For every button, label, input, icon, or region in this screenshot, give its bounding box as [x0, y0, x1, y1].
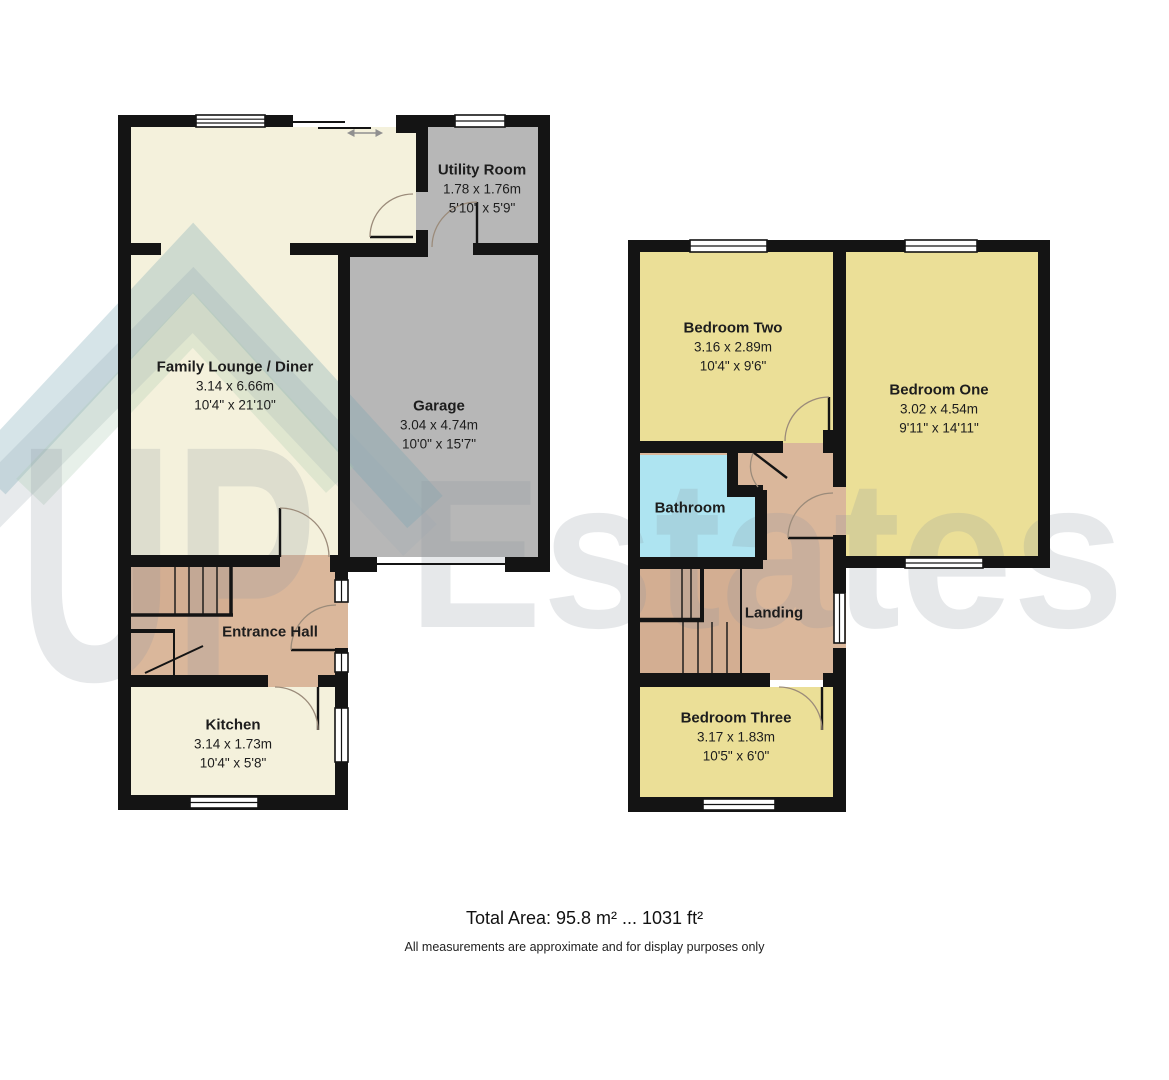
room-dim-metric: 3.04 x 4.74m [400, 416, 478, 435]
room-name: Kitchen [194, 716, 272, 735]
room-label-bathroom: Bathroom [655, 499, 726, 518]
stairs-ground-icon [118, 567, 233, 676]
door-icon-kitchen [275, 687, 318, 730]
window-icon [190, 797, 258, 808]
room-name: Family Lounge / Diner [157, 358, 314, 377]
floorplan-canvas: UP Estates [0, 0, 1169, 1080]
room-name: Bedroom Two [684, 319, 783, 338]
room-dim-imperial: 5'10" x 5'9" [438, 199, 526, 218]
room-dim-imperial: 10'4" x 21'10" [157, 396, 314, 415]
room-dim-imperial: 10'5" x 6'0" [681, 747, 792, 766]
room-dim-metric: 3.02 x 4.54m [889, 400, 988, 419]
window-icon [196, 115, 265, 127]
room-dim-metric: 3.14 x 1.73m [194, 735, 272, 754]
room-dim-metric: 3.14 x 6.66m [157, 377, 314, 396]
stairs-first-icon [632, 563, 742, 675]
room-name: Utility Room [438, 161, 526, 180]
room-name: Bedroom One [889, 381, 988, 400]
room-label-bedroom-two: Bedroom Two 3.16 x 2.89m 10'4" x 9'6" [684, 319, 783, 376]
window-icon [335, 708, 348, 762]
room-label-bedroom-three: Bedroom Three 3.17 x 1.83m 10'5" x 6'0" [681, 709, 792, 766]
doors [275, 194, 833, 730]
ground-floor-walls [118, 115, 550, 810]
windows [190, 115, 983, 810]
room-dim-metric: 3.16 x 2.89m [684, 338, 783, 357]
window-icon [834, 593, 845, 643]
door-icon-bedroom-one [788, 493, 833, 538]
window-icon [905, 240, 977, 252]
room-dim-metric: 1.78 x 1.76m [438, 180, 526, 199]
room-dim-imperial: 10'0" x 15'7" [400, 435, 478, 454]
window-icon [905, 558, 983, 568]
room-name: Entrance Hall [222, 623, 318, 642]
room-label-landing: Landing [745, 604, 803, 623]
room-dim-imperial: 10'4" x 9'6" [684, 357, 783, 376]
window-icon [690, 240, 767, 252]
total-area-text: Total Area: 95.8 m² ... 1031 ft² [0, 908, 1169, 929]
door-icon-bathroom [750, 452, 787, 487]
room-label-lounge: Family Lounge / Diner 3.14 x 6.66m 10'4"… [157, 358, 314, 415]
room-label-utility: Utility Room 1.78 x 1.76m 5'10" x 5'9" [438, 161, 526, 218]
room-label-entrance-hall: Entrance Hall [222, 623, 318, 642]
window-icon [703, 799, 775, 810]
double-arrow-icon [347, 129, 383, 137]
room-name: Landing [745, 604, 803, 623]
door-icon-utility [370, 194, 413, 237]
room-name: Garage [400, 397, 478, 416]
room-dim-imperial: 9'11" x 14'11" [889, 419, 988, 438]
room-dim-imperial: 10'4" x 5'8" [194, 754, 272, 773]
sliding-door-icon [293, 122, 383, 137]
disclaimer-text: All measurements are approximate and for… [0, 940, 1169, 954]
room-label-garage: Garage 3.04 x 4.74m 10'0" x 15'7" [400, 397, 478, 454]
room-name: Bathroom [655, 499, 726, 518]
room-label-bedroom-one: Bedroom One 3.02 x 4.54m 9'11" x 14'11" [889, 381, 988, 438]
door-icon-lounge-hall [280, 508, 329, 557]
window-icon [335, 653, 348, 672]
room-dim-metric: 3.17 x 1.83m [681, 728, 792, 747]
door-icon-bedroom-two [785, 397, 829, 441]
window-icon [455, 115, 505, 127]
window-icon [335, 580, 348, 602]
room-label-kitchen: Kitchen 3.14 x 1.73m 10'4" x 5'8" [194, 716, 272, 773]
room-name: Bedroom Three [681, 709, 792, 728]
